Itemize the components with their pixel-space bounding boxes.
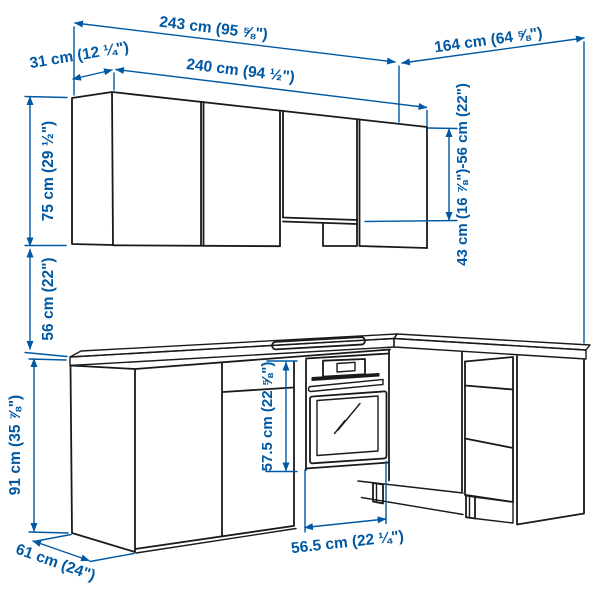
corner-wall-cabinet-bottom-edge [360,246,428,248]
dim-label-56: 56 cm (22") [40,257,57,340]
dim-label-56-5: 56.5 cm (22 ¼") [290,528,405,557]
oven-control-panel [323,359,365,377]
wall-doors-bottom-edge [113,245,280,246]
end-panel-outline [517,356,584,525]
oven-display [337,362,355,372]
countertop-surface-return [394,334,590,350]
wall-side-panel [72,92,113,245]
dim-label-31: 31 cm (12 ¼") [28,39,130,72]
hood-filler-box [323,223,357,246]
drawer-division-lines [465,386,513,449]
diagram-canvas: 243 cm (95 ⅝") 164 cm (64 ⅝") 31 cm (12 … [0,0,600,600]
dim-label-243: 243 cm (95 ⅝") [158,14,268,44]
dim-label-91: 91 cm (35 ⅞") [7,395,24,495]
oven-window [317,396,378,456]
countertop-front-edge-return [394,339,586,360]
oven-handle [309,380,384,392]
oven-glass-reflections [335,404,361,434]
corner-panel-gap-lines [462,352,465,495]
dim-label-240: 240 cm (94 ½") [185,56,295,86]
drawer-unit-outline [465,357,513,502]
base-cabinets-drawing [70,334,590,553]
dim-label-43-56: 43 cm (16 ⅞")-56 cm (22") [454,83,471,266]
wall-door-gap-lines [201,102,360,246]
kitchen-dimension-diagram: 243 cm (95 ⅝") 164 cm (64 ⅝") 31 cm (12 … [0,0,600,600]
dim-label-75: 75 cm (29 ½") [40,121,57,221]
base-drawer-line [223,388,293,393]
dim-label-61: 61 cm (24") [13,541,97,585]
wall-cabinets-drawing [72,92,427,248]
dim-label-57-5: 57.5 cm (22 ⅝") [259,362,276,472]
base-fronts-bottom-edge [135,526,293,549]
plinth-floor-line [136,529,296,554]
base-side-panel [71,366,136,553]
wall-cabinet-top-edge [112,92,427,127]
oven [306,354,389,469]
base-return-unit [462,352,584,525]
dim-line-56-5 [305,519,386,528]
toe-kick-piece-return [466,496,475,519]
hood-cabinet-bottom-edge [283,218,357,225]
return-plinth-band [475,497,513,523]
dim-line-31 [73,70,112,79]
